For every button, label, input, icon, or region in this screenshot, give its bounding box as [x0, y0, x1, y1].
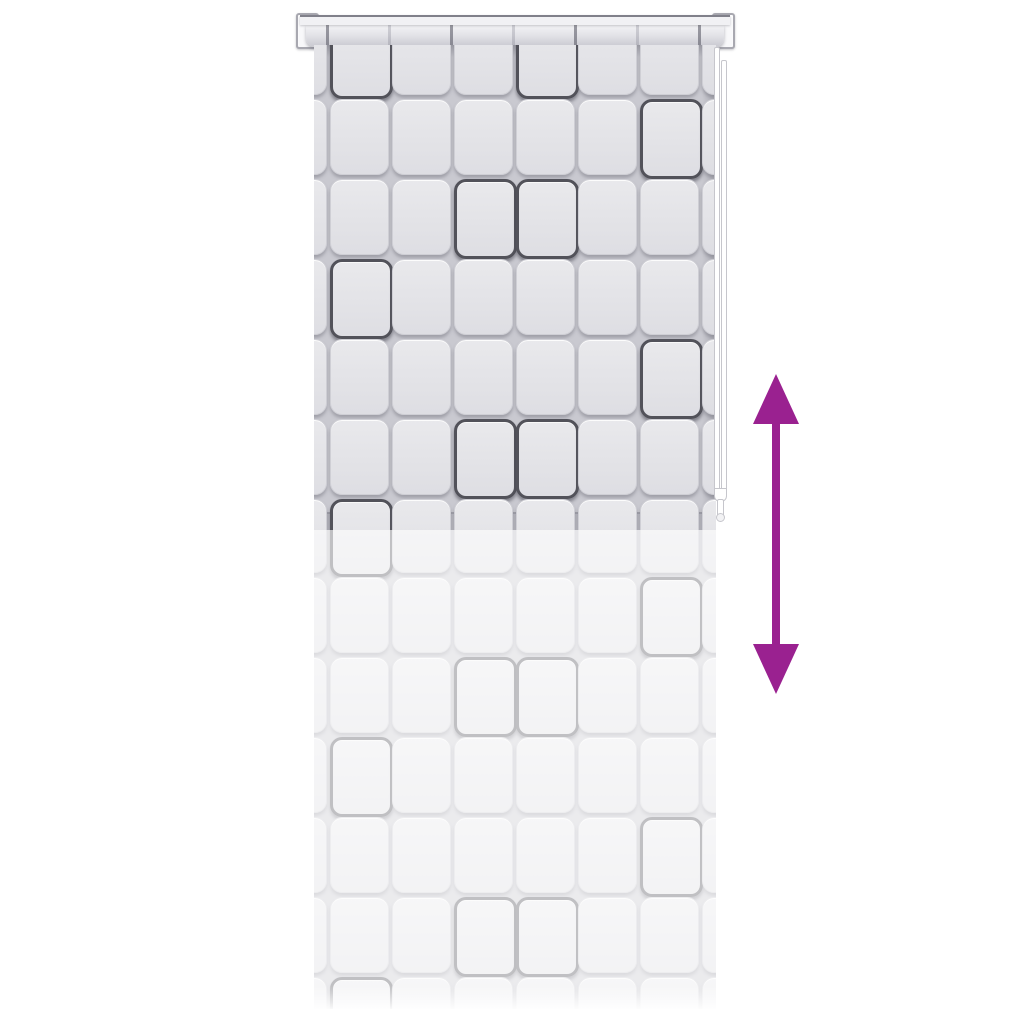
pattern-square: [578, 817, 637, 893]
arrow-down-head-icon: [753, 644, 799, 694]
pattern-square: [330, 657, 389, 733]
pattern-square-accent: [330, 45, 393, 99]
roller-tube: [306, 25, 724, 47]
pattern-square: [392, 45, 451, 95]
pattern-square: [330, 419, 389, 495]
pattern-square: [578, 339, 637, 415]
pattern-square: [516, 737, 575, 813]
pattern-square: [454, 499, 513, 530]
roller-seam-line: [574, 25, 577, 47]
pattern-square: [392, 499, 451, 530]
pattern-square: [314, 530, 327, 573]
pattern-square: [516, 259, 575, 335]
pattern-square: [330, 577, 389, 653]
pattern-square: [640, 499, 699, 530]
pattern-square: [392, 897, 451, 973]
pattern-square-accent: [640, 817, 703, 897]
pattern-square: [516, 499, 575, 530]
pattern-square: [314, 817, 327, 893]
pull-cord-bead: [716, 513, 725, 522]
arrow-shaft: [772, 420, 780, 650]
pattern-square: [314, 657, 327, 733]
pattern-square-accent: [330, 259, 393, 339]
pattern-square: [330, 339, 389, 415]
pattern-square: [578, 99, 637, 175]
pattern-square: [392, 530, 451, 573]
roller-seam-line: [636, 25, 639, 47]
pattern-square: [702, 897, 716, 973]
pattern-square: [578, 45, 637, 95]
pattern-square: [314, 179, 327, 255]
pattern-square-accent: [454, 419, 517, 499]
pattern-square: [702, 657, 716, 733]
pattern-square: [578, 530, 637, 573]
pattern-square: [702, 577, 716, 653]
pattern-square: [454, 339, 513, 415]
roller-seam-line: [512, 25, 515, 47]
pattern-square-accent: [330, 737, 393, 817]
roller-seam-line: [326, 25, 329, 47]
pattern-square: [640, 45, 699, 95]
pattern-square: [702, 499, 716, 530]
pattern-square: [314, 45, 327, 95]
pattern-square: [454, 530, 513, 573]
pattern-square: [454, 99, 513, 175]
pattern-square: [640, 897, 699, 973]
pattern-square-accent: [454, 897, 517, 977]
pattern-square: [640, 259, 699, 335]
roller-seam-line: [450, 25, 453, 47]
pattern-square: [578, 737, 637, 813]
pattern-square: [516, 577, 575, 653]
pattern-square: [314, 737, 327, 813]
pattern-square: [330, 179, 389, 255]
pattern-square: [314, 339, 327, 415]
pattern-square: [640, 737, 699, 813]
pattern-square: [516, 99, 575, 175]
pattern-square: [640, 419, 699, 495]
pattern-square: [314, 577, 327, 653]
pattern-square: [640, 179, 699, 255]
pattern-square: [578, 259, 637, 335]
pattern-square-accent: [454, 657, 517, 737]
pattern-square: [392, 657, 451, 733]
pattern-square: [392, 259, 451, 335]
pattern-square: [314, 419, 327, 495]
pattern-square: [314, 499, 327, 530]
pattern-square: [702, 737, 716, 813]
pattern-square: [578, 499, 637, 530]
pattern-square: [392, 179, 451, 255]
pull-cord-strand-left: [714, 47, 720, 497]
roller-seam-line: [698, 25, 701, 47]
pattern-square-accent: [516, 45, 579, 99]
pattern-square-accent: [454, 179, 517, 259]
arrow-up-head-icon: [753, 374, 799, 424]
pattern-square: [702, 817, 716, 893]
pattern-square: [454, 45, 513, 95]
pattern-square: [330, 99, 389, 175]
pattern-square: [578, 657, 637, 733]
pattern-square: [640, 530, 699, 573]
pattern-square-accent: [516, 657, 579, 737]
pattern-square-accent: [640, 339, 703, 419]
pattern-square: [516, 339, 575, 415]
pattern-square: [314, 897, 327, 973]
pattern-square: [392, 737, 451, 813]
pattern-square: [454, 259, 513, 335]
roller-seam-line: [388, 25, 391, 47]
pattern-square: [330, 897, 389, 973]
pattern-square: [454, 577, 513, 653]
pattern-square: [392, 419, 451, 495]
pull-cord-strand-right: [721, 60, 727, 497]
pattern-square: [392, 339, 451, 415]
pattern-square: [516, 530, 575, 573]
bottom-fade: [296, 986, 732, 1016]
pattern-square-accent: [640, 577, 703, 657]
pattern-square: [578, 419, 637, 495]
pattern-square: [454, 817, 513, 893]
pattern-square-accent: [330, 530, 393, 577]
pattern-square: [516, 817, 575, 893]
pattern-square: [578, 897, 637, 973]
head-rail-bar: [300, 15, 730, 25]
pattern-square: [392, 577, 451, 653]
pattern-square: [640, 657, 699, 733]
pattern-square-accent: [640, 99, 703, 179]
pattern-square: [454, 737, 513, 813]
pattern-square-accent: [516, 897, 579, 977]
pattern-square: [578, 179, 637, 255]
pattern-square: [392, 817, 451, 893]
blind-fabric-upper: [314, 45, 716, 530]
pattern-square: [702, 530, 716, 573]
pattern-square: [392, 99, 451, 175]
pattern-square-accent: [330, 499, 393, 530]
pattern-square-accent: [516, 179, 579, 259]
blind-fabric-ghost-extension: [314, 530, 716, 1009]
pattern-square: [578, 577, 637, 653]
pattern-square: [330, 817, 389, 893]
pattern-square: [314, 99, 327, 175]
pattern-square-accent: [516, 419, 579, 499]
pattern-square: [314, 259, 327, 335]
